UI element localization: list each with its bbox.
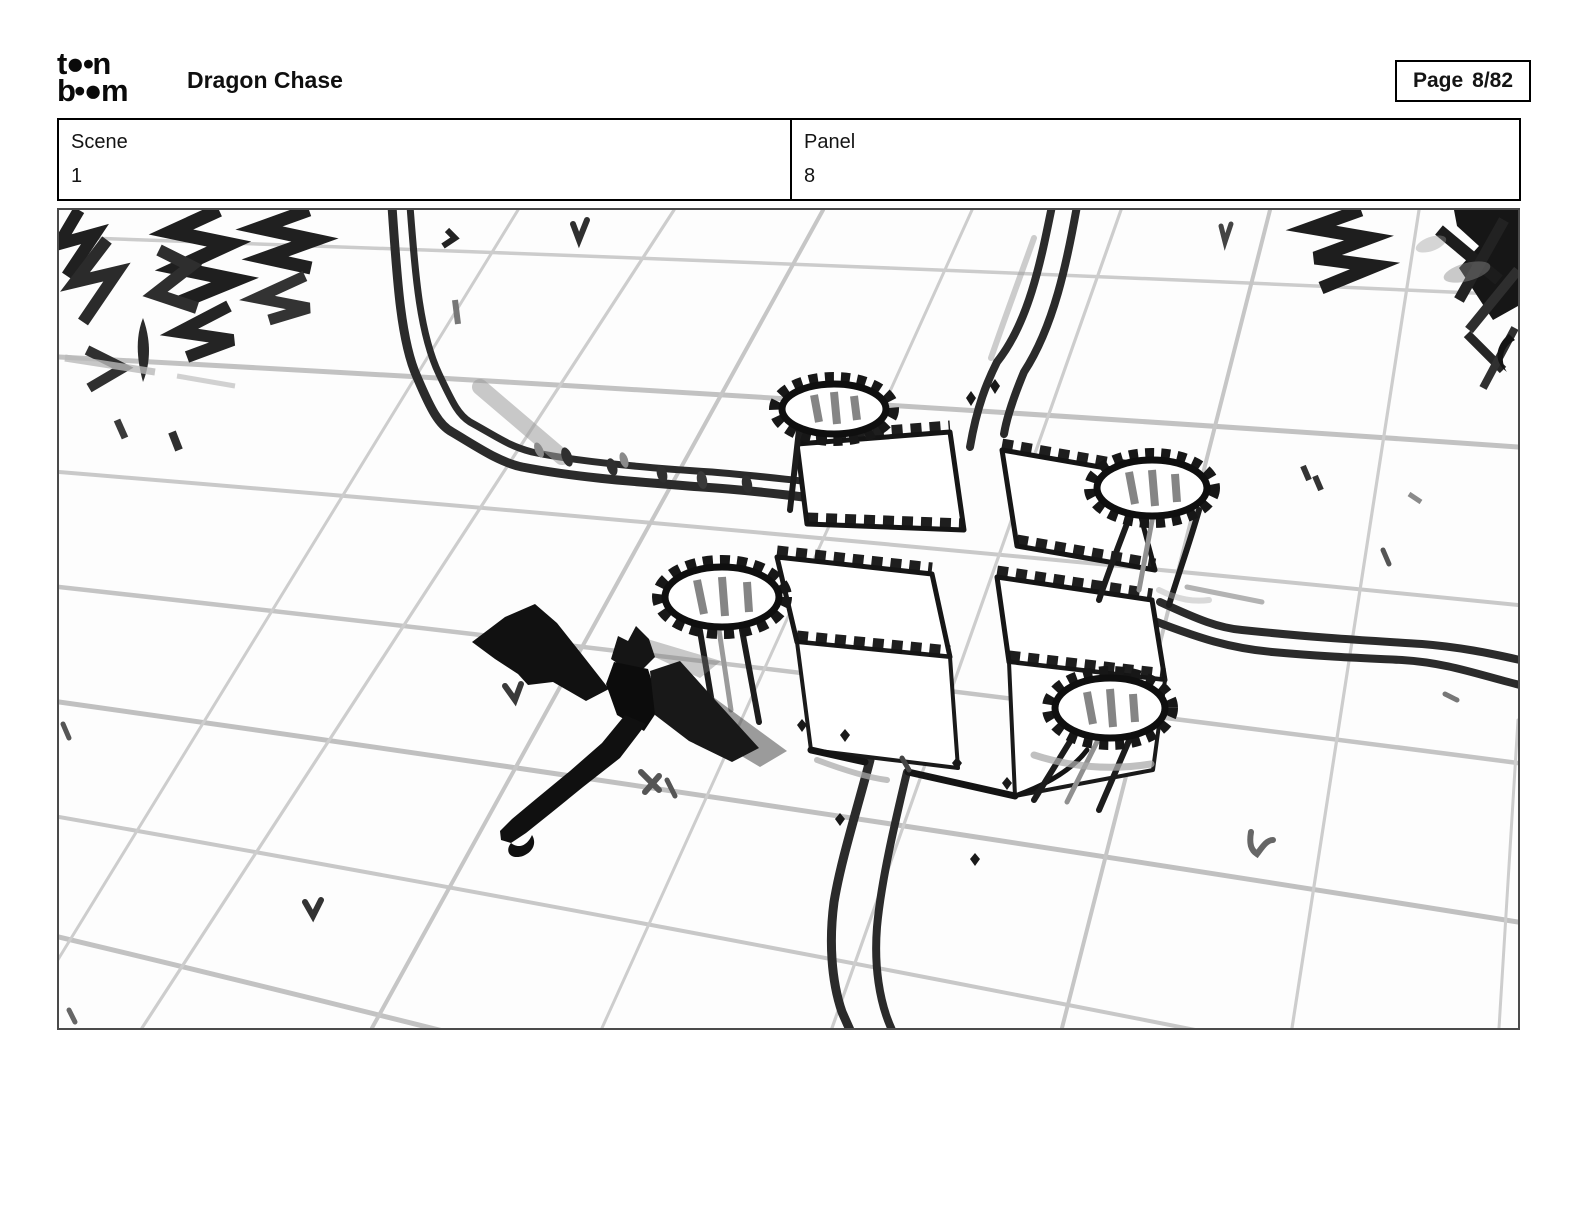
scene-label: Scene: [71, 130, 778, 154]
scene-value: 1: [71, 164, 778, 188]
trees-top-right: [1303, 210, 1518, 502]
panel-value: 8: [804, 164, 1507, 188]
project-title: Dragon Chase: [187, 67, 343, 94]
page-number-box: Page 8/82: [1395, 60, 1531, 102]
panel-cell: Panel 8: [792, 120, 1519, 199]
panel-label: Panel: [804, 130, 1507, 154]
scene-cell: Scene 1: [59, 120, 792, 199]
perspective-grid: [59, 210, 1518, 1028]
dragon-sketch: [472, 604, 787, 857]
storyboard-panel-frame: [57, 208, 1520, 1030]
page-label: Page: [1413, 69, 1463, 93]
toonboom-logo: t●•n b•●m: [57, 50, 127, 104]
storyboard-page: t●•n b•●m Dragon Chase Page 8/82 Scene 1…: [0, 0, 1584, 1224]
roads-sketch: [392, 210, 1518, 1028]
castle-sketch: [658, 378, 1214, 866]
storyboard-sketch: [59, 210, 1518, 1028]
toonboom-logo-line2: b•●m: [57, 77, 127, 104]
page-value: 8/82: [1472, 69, 1513, 93]
scene-panel-row: Scene 1 Panel 8: [57, 118, 1521, 201]
